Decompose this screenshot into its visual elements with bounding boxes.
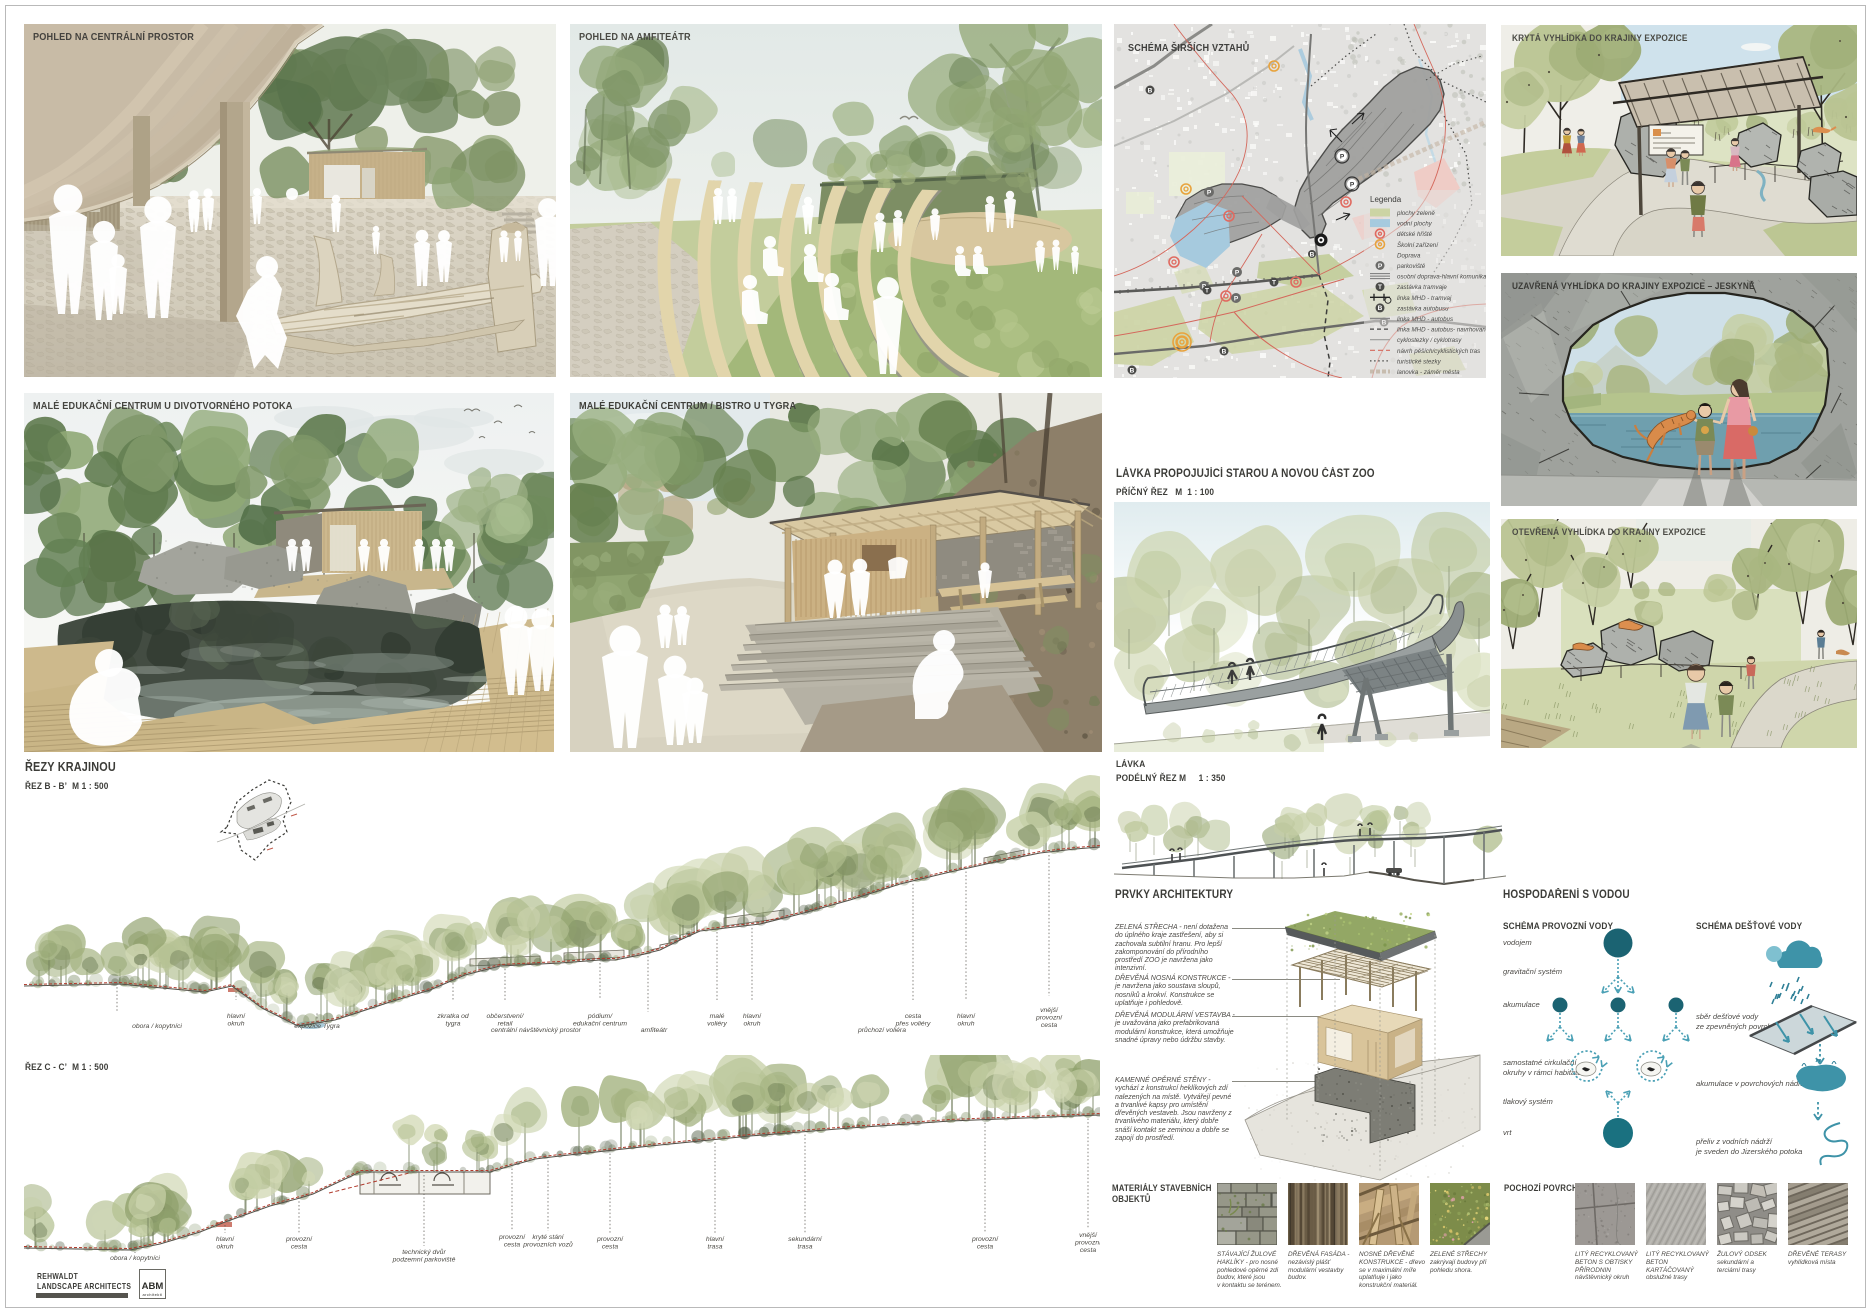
svg-text:T: T [1272, 279, 1276, 286]
svg-text:cesta: cesta [504, 1242, 520, 1249]
svg-text:vodní plochy: vodní plochy [1397, 221, 1433, 228]
svg-text:cesta: cesta [602, 1244, 618, 1251]
svg-text:lanovka - záměr města: lanovka - záměr města [1397, 369, 1460, 376]
svg-text:P: P [1234, 295, 1239, 302]
svg-text:hlavní: hlavní [216, 1236, 235, 1243]
svg-text:P: P [1378, 263, 1383, 270]
svg-text:provozní: provozní [1074, 1240, 1100, 1247]
svg-text:Legenda: Legenda [1370, 195, 1402, 204]
svg-text:provozní: provozní [971, 1236, 999, 1243]
svg-text:B: B [1148, 87, 1153, 94]
svg-text:okruh: okruh [957, 1021, 974, 1028]
svg-text:provozních vozů: provozních vozů [522, 1241, 573, 1249]
svg-text:B: B [1310, 251, 1315, 258]
svg-text:amfiteátr: amfiteátr [641, 1027, 668, 1034]
svg-text:B: B [1130, 367, 1135, 374]
svg-text:P: P [1235, 269, 1240, 276]
svg-text:B: B [1222, 348, 1227, 355]
svg-text:zkratka od: zkratka od [436, 1013, 469, 1020]
svg-text:podzemní parkoviště: podzemní parkoviště [392, 1257, 456, 1264]
svg-text:provozní: provozní [285, 1236, 313, 1243]
svg-text:expozice Tygra: expozice Tygra [294, 1023, 340, 1030]
svg-text:okruh: okruh [216, 1244, 233, 1251]
svg-text:linka MHD - tramvaj: linka MHD - tramvaj [1397, 295, 1452, 302]
svg-text:obora / kopytníci: obora / kopytníci [132, 1023, 182, 1030]
svg-text:voliéry: voliéry [707, 1021, 727, 1028]
svg-text:P: P [1207, 189, 1212, 196]
svg-text:plochy zeleně: plochy zeleně [1396, 210, 1435, 217]
svg-text:technický dvůr: technický dvůr [402, 1248, 446, 1256]
svg-text:edukační centrum: edukační centrum [573, 1021, 627, 1028]
svg-text:linka MHD - autobus- navrhovan: linka MHD - autobus- navrhované [1397, 327, 1486, 334]
svg-text:kryté stání: kryté stání [532, 1234, 564, 1241]
svg-text:Školní zařízení: Školní zařízení [1397, 242, 1439, 249]
svg-text:hlavní: hlavní [227, 1013, 246, 1020]
svg-text:občerstvení/: občerstvení/ [486, 1013, 524, 1020]
svg-text:Doprava: Doprava [1397, 252, 1421, 259]
svg-text:hlavní: hlavní [957, 1013, 976, 1020]
svg-text:návrh pěších/cyklistických tra: návrh pěších/cyklistických tras [1397, 348, 1480, 355]
svg-text:linka MHD - autobus: linka MHD - autobus [1397, 316, 1453, 323]
svg-text:vnější: vnější [1040, 1007, 1059, 1014]
svg-text:přes voliéry: přes voliéry [895, 1021, 931, 1028]
svg-text:P: P [1340, 153, 1345, 160]
svg-text:parkoviště: parkoviště [1396, 263, 1426, 270]
svg-text:P: P [1350, 181, 1355, 188]
svg-text:turistické stezky: turistické stezky [1397, 358, 1442, 365]
svg-text:cesta: cesta [977, 1244, 993, 1251]
svg-text:zastávka autobusu: zastávka autobusu [1396, 305, 1449, 312]
svg-text:hlavní: hlavní [706, 1236, 725, 1243]
svg-text:trasa: trasa [707, 1244, 722, 1251]
svg-text:cesta: cesta [291, 1244, 307, 1251]
svg-text:cyklostezky / cyklotrasy: cyklostezky / cyklotrasy [1397, 337, 1462, 344]
svg-text:malé: malé [710, 1013, 725, 1020]
svg-text:hlavní: hlavní [743, 1013, 762, 1020]
svg-text:trasa: trasa [797, 1244, 812, 1251]
svg-text:provozní: provozní [498, 1234, 526, 1241]
svg-text:dětské hřiště: dětské hřiště [1397, 231, 1433, 238]
svg-text:provozní: provozní [596, 1236, 624, 1243]
svg-text:okruh: okruh [227, 1021, 244, 1028]
svg-text:provozní: provozní [1035, 1015, 1063, 1022]
svg-text:T: T [1205, 287, 1209, 294]
svg-text:tygra: tygra [445, 1021, 460, 1028]
svg-text:cesta: cesta [1041, 1022, 1057, 1029]
svg-text:obora / kopytníci: obora / kopytníci [110, 1255, 160, 1262]
svg-text:T: T [1378, 284, 1382, 291]
svg-text:osobní doprava-hlavní komunika: osobní doprava-hlavní komunikace [1397, 274, 1486, 281]
svg-text:pódium/: pódium/ [587, 1013, 613, 1020]
svg-text:B: B [1378, 305, 1383, 312]
svg-text:centrální návštěvnický prostor: centrální návštěvnický prostor [491, 1027, 582, 1034]
svg-text:cesta: cesta [905, 1013, 921, 1020]
svg-text:sekundární: sekundární [788, 1236, 823, 1243]
svg-text:vnější: vnější [1079, 1232, 1098, 1239]
svg-text:cesta: cesta [1080, 1247, 1096, 1254]
svg-text:okruh: okruh [743, 1021, 760, 1028]
svg-text:zastávka tramvaje: zastávka tramvaje [1396, 284, 1447, 291]
